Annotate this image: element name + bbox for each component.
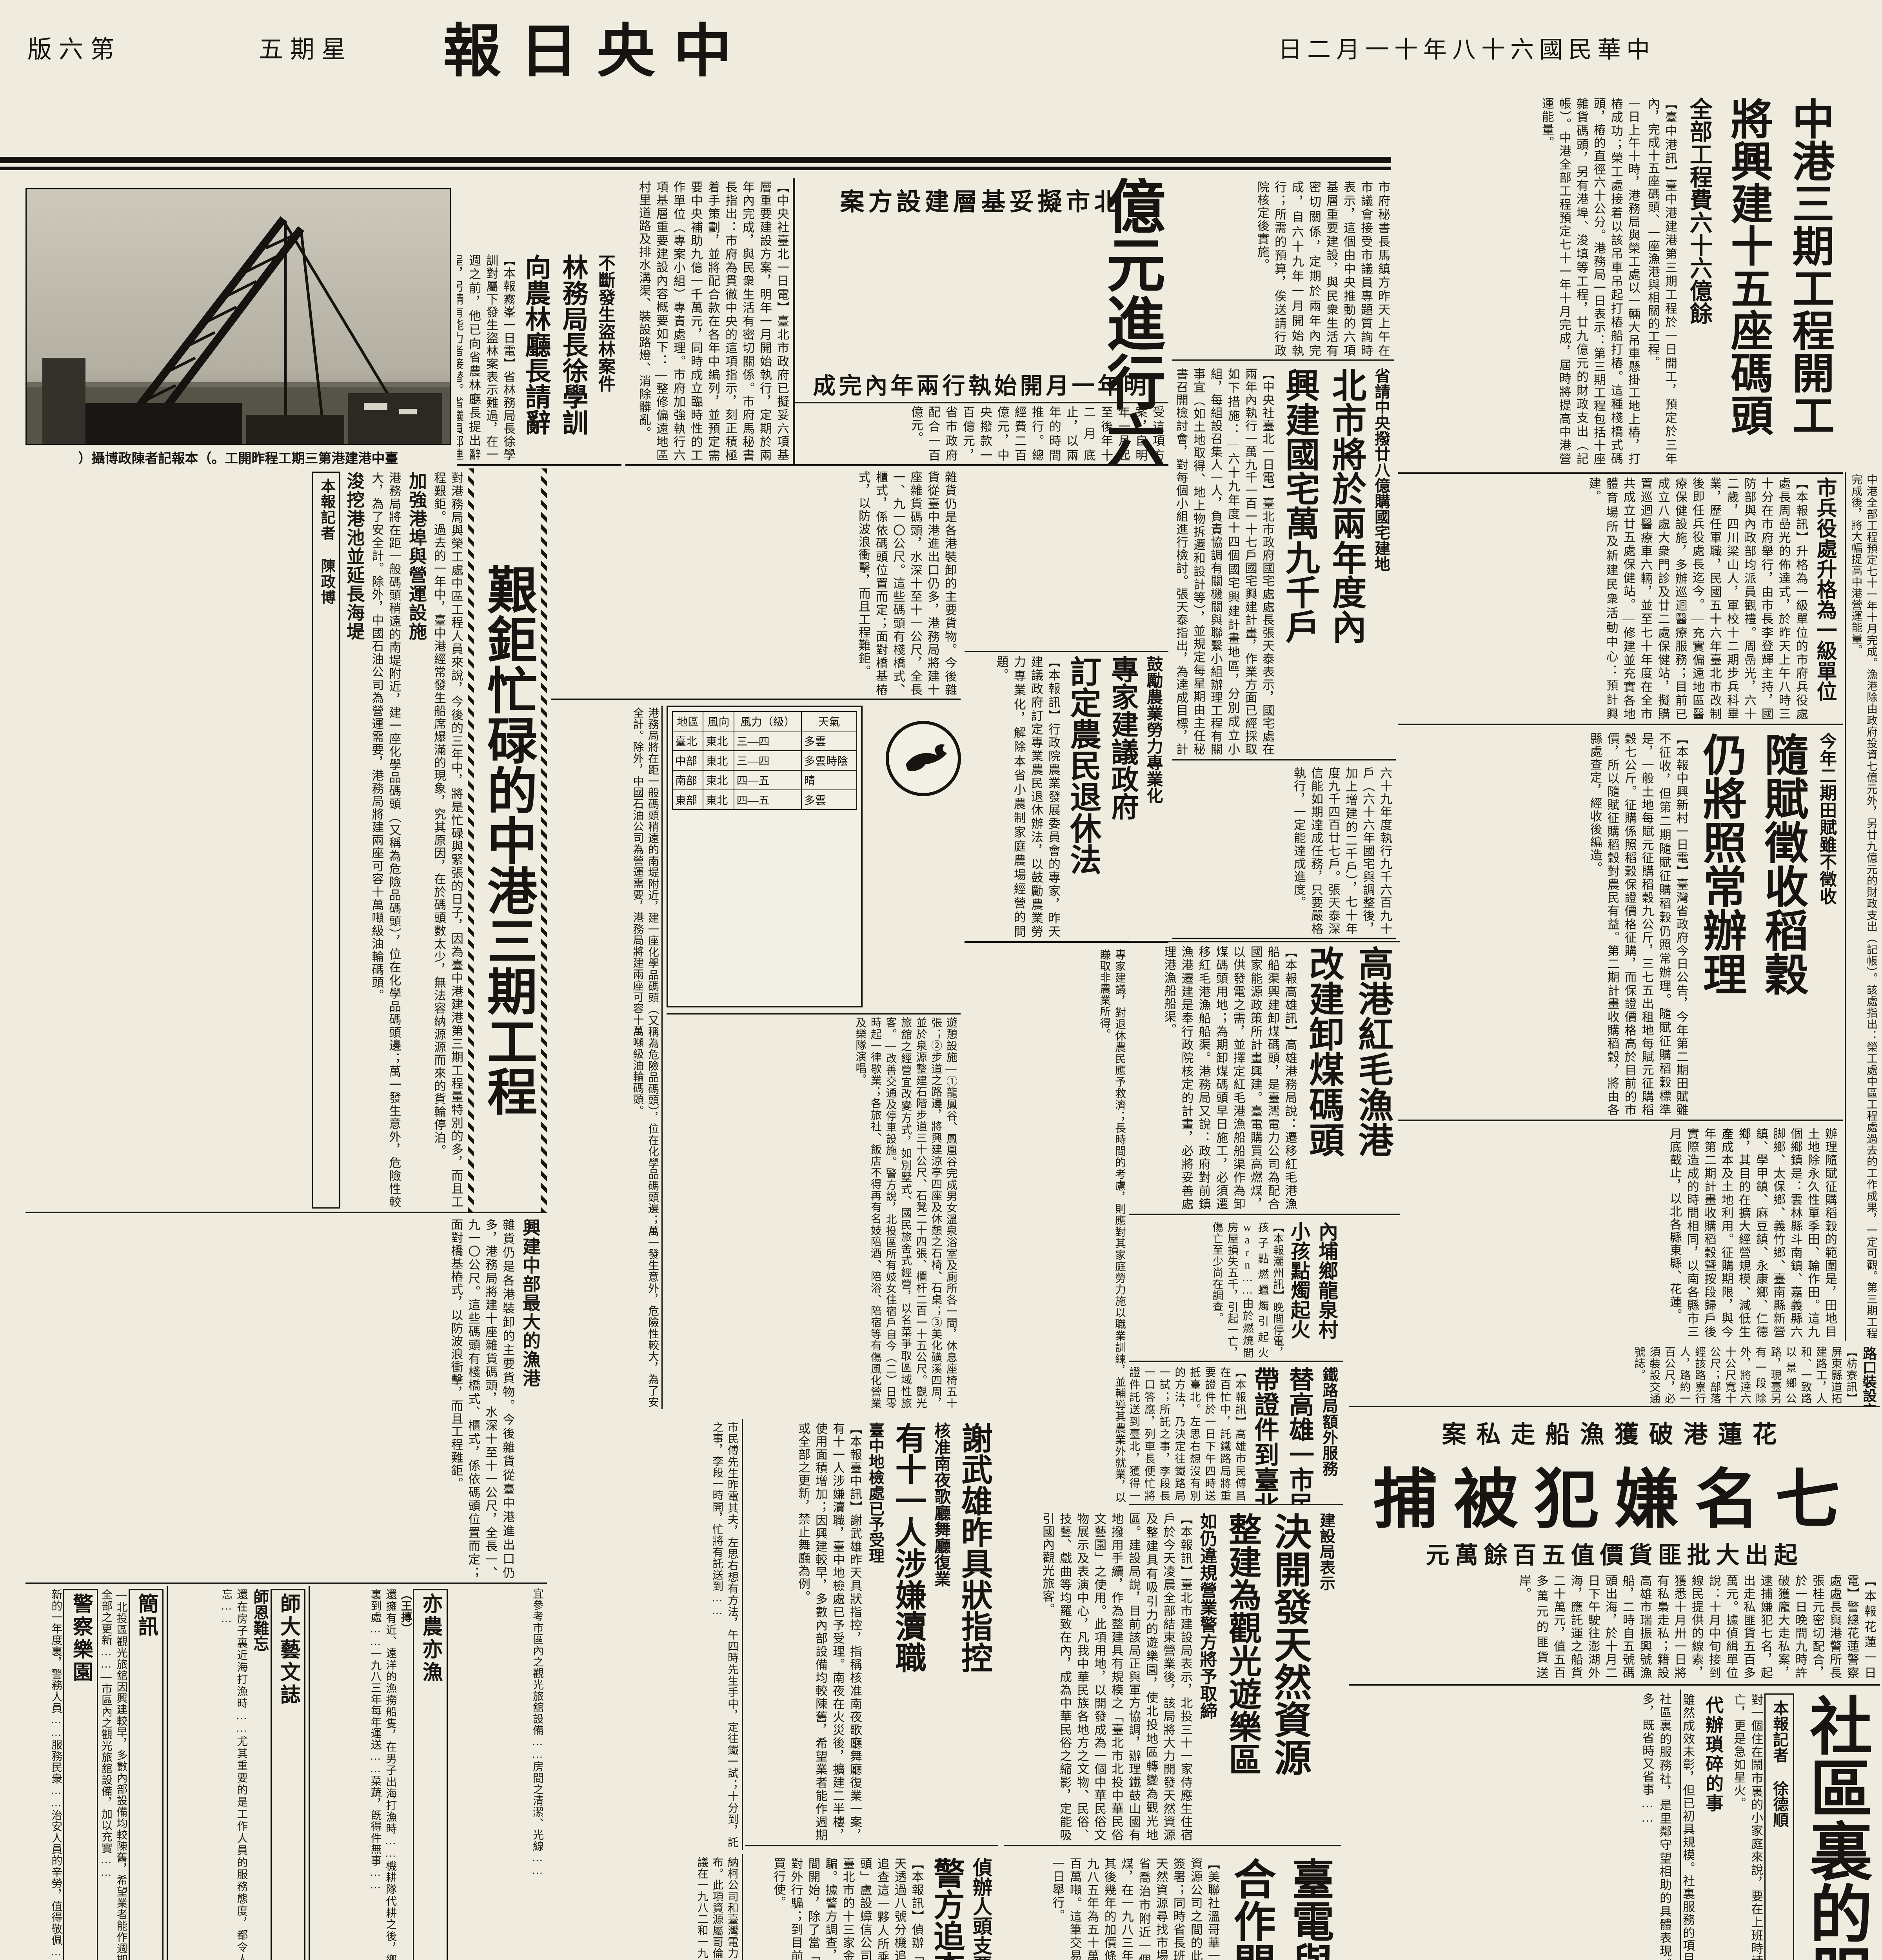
column-police-title: 警察樂園 bbox=[63, 1589, 98, 1960]
story-taichung-port-subhead: 全部工程費六十六億餘 bbox=[1681, 97, 1717, 465]
story-rice-levy-body: 【本報中興新村一日電】臺灣省政府今日公告，今年第二期田賦雖不征收，但第二期隨賦征… bbox=[1586, 732, 1690, 1116]
story-taipower-coal-body2: 納柯公司和臺灣電力公司間的此項交易，是在昨天宣布。此項資源屬哥倫比亞省的天然資源… bbox=[551, 1854, 743, 1960]
story-railway-favor-body: 【本報訊】高雄市民傅昌在百忙中，託鐵路局將重要證件於一日下午四時送抵臺北。左思右… bbox=[1129, 1367, 1247, 1501]
weather-cell: 三―四 bbox=[734, 751, 801, 770]
story-smuggling-kicker: 案私走船漁獲破港蓮花 bbox=[1349, 1411, 1880, 1452]
story-forestry: 不斷發生盜林案件 林務局長徐學訓 向農林廳長請辭 【本報霧峯一日電】省林務局長徐… bbox=[457, 251, 621, 466]
story-hongmao-port-headline2: 改建卸煤碼頭 bbox=[1299, 946, 1348, 1210]
story-housing-kicker: 省請中央撥廿八億購國宅建地 bbox=[1369, 368, 1393, 756]
story-housing-headline: 北市將於兩年度內 bbox=[1322, 368, 1369, 756]
story-xiewuxiong-side: 市民傅先生昨電其夫，左思右想有方法，午四時先生手中，定往鐵一試；十分到，託之事，… bbox=[551, 1419, 743, 1850]
story-beitou-tourism-body: 【本報訊】臺北市建設局表示，北投三十一家侍應生住宿戶於今天凌晨全部結束營業後，該… bbox=[1039, 1512, 1194, 1842]
center-column-text: 雜貨仍是各港裝卸的主要貨物。今後雜貨從臺中港進出口仍多，港務局將建十座雜貨碼頭，… bbox=[551, 468, 961, 700]
story-farmer-retire-kicker: 鼓勵農業勞力專業化 bbox=[1141, 655, 1165, 938]
crane-photo-art bbox=[27, 189, 451, 445]
story-military-service-headline: 市兵役處升格為一級單位 bbox=[1809, 477, 1840, 720]
story-port-feature-sub3: 興建中部最大的漁港 bbox=[516, 1218, 544, 1579]
story-rice-levy-kicker: 今年二期田賦雖不徵收 bbox=[1813, 732, 1840, 1116]
page-date: 日二月一十年八十六國民華中 bbox=[1278, 31, 1858, 70]
weather-cell: 東北 bbox=[703, 731, 734, 751]
story-military-service: 市兵役處升格為一級單位 【本報訊】升格為一級單位的市府兵役處處長周嵒光的佈達式，… bbox=[1398, 472, 1843, 725]
story-housing-body: 【中央社臺北一日電】臺北市政府國宅處處長張天泰表示，國宅處在兩年內執行一萬九千一… bbox=[1172, 368, 1276, 756]
weather-header: 地區 bbox=[672, 711, 703, 731]
story-six-projects-body2: 市府秘書長馬鎮方昨天上午在市議會接受市議員專題質詢時表示，這個由中央推動的六項基… bbox=[1172, 178, 1394, 361]
column-art-journal-title: 師大藝文誌 bbox=[271, 1589, 305, 1960]
story-xiewuxiong-headline: 謝武雄昨具狀指控 bbox=[953, 1422, 995, 1842]
story-check-fraud-kicker: 偵辦人頭支票案 bbox=[967, 1857, 995, 1960]
story-hongmao-port: 高港紅毛漁港 改建卸煤碼頭 【本報高雄訊】高雄港務局說：遷移紅毛港漁船船渠興建卸… bbox=[1129, 941, 1400, 1215]
story-taichung-port-lead: 【臺中港訊】臺中港建港第三期工程於一日開工，預定於三年內，完成十五座碼頭、一座漁… bbox=[1642, 97, 1681, 465]
story-community-service-bodyB: 雖然成效未彰，但已初具規模。社裏服務的項目很多，每月代辦的事項都有兩、三百件，例… bbox=[1680, 1693, 1696, 1960]
story-community-service-extension: 社區裏的服務社，是里鄰守望相助的具體表現。住戶只要把要辦的事交給服務社，繳付少許… bbox=[1349, 1690, 1676, 1960]
weather-cell: 南部 bbox=[672, 770, 703, 790]
weather-cell: 東北 bbox=[703, 790, 734, 809]
story-smuggling: 案私走船漁獲破港蓮花 捕被犯嫌名七 元萬餘百五值價貨匪批大出起 【本報花蓮一日電… bbox=[1349, 1411, 1880, 1686]
story-neipu-fire-headline2: 小孩點燭起火 bbox=[1285, 1221, 1313, 1358]
story-port-feature: 對港務局與榮工處中區工程人員來說，今後的三年中，將是忙碌與緊張的日子，因為臺中港… bbox=[25, 468, 547, 1213]
column-farm-fish-author: （王摶） bbox=[398, 1589, 413, 1960]
story-traffic-signal-body: 【枋寮訊】屏東縣道拓建路工，人和、一致路以景鄉公路，現臺另有一段除外，將達六十公… bbox=[1631, 1346, 1858, 1404]
column-briefs: 簡訊 ―北投區觀光旅舘因興建較早，多數內部設備均較陳舊，希望業者能作週期或全部之… bbox=[25, 1586, 167, 1960]
right-edge-column: 中港全部工程預定七十一年十月完成。漁港除由政府投資七億元外，另廿九億元的財政支出… bbox=[1845, 472, 1880, 1341]
weather-cell: 東北 bbox=[703, 751, 734, 770]
masthead-rule bbox=[0, 157, 1391, 170]
story-farmer-retire: 鼓勵農業勞力專業化 專家建議政府 訂定農民退休法 【本報訊】行政院農業發展委員會… bbox=[965, 651, 1168, 943]
weather-cell: 多雲 bbox=[801, 790, 857, 809]
story-xiewuxiong-headline2: 有十一人涉嫌瀆職 bbox=[887, 1422, 928, 1842]
story-housing-headline2: 興建國宅萬九千戶 bbox=[1276, 368, 1322, 756]
story-xiewuxiong: 謝武雄昨具狀指控 核准南夜歌廳舞廳復業 有十一人涉嫌瀆職 臺中地檢處已予受理 【… bbox=[745, 1419, 998, 1846]
story-rice-levy-headline2: 仍將照常辦理 bbox=[1690, 732, 1751, 1116]
story-hongmao-port-headline: 高港紅毛漁港 bbox=[1348, 946, 1397, 1210]
story-six-projects-body: 【中央社臺北一日電】臺北市政府已擬妥六項基層重要建設方案，明年一月開始執行，定期… bbox=[625, 178, 794, 464]
story-taipower-coal-headline2: 合作開採煤礦 bbox=[1221, 1857, 1280, 1960]
story-rice-levy-headline: 隨賦徵收稻穀 bbox=[1751, 732, 1813, 1116]
center-lower-text: 遊憩設施―①龍鳳谷、鳳凰谷完成男女溫泉浴室及廁所各一間，休息座椅五十張；②步道之… bbox=[667, 1013, 961, 1411]
column-art-journal-body: 還在房子裏近海打漁時……尤其重要的是工作人員的服務態度，都令人難忘…… bbox=[218, 1589, 249, 1960]
dove-emblem bbox=[884, 719, 963, 798]
story-community-service: 社區裏的服務社 本報記者 徐德順 對一個住在鬧市裏的小家庭來說，要在上班時請個假… bbox=[1680, 1690, 1880, 1960]
story-port-feature-sub1: 加強港埠與營運設施 bbox=[402, 472, 430, 1209]
story-community-service-headline: 社區裏的服務社 bbox=[1794, 1693, 1876, 1960]
story-community-service-byline: 本報記者 徐德順 bbox=[1764, 1693, 1794, 1960]
story-beitou-tourism-subhead: 如仍違規營業警方將予取締 bbox=[1194, 1512, 1219, 1842]
weather-cell: 東部 bbox=[672, 790, 703, 809]
column-farm-fish-title: 亦農亦漁 bbox=[413, 1589, 448, 1960]
story-xiewuxiong-lead: 臺中地檢處已予受理 bbox=[863, 1422, 887, 1842]
story-farmer-retire-headline2: 訂定農民退休法 bbox=[1062, 655, 1103, 938]
story-port-feature-byline: 本報記者 陳政博 bbox=[312, 472, 340, 1209]
story-community-subhead-1: 代辦瑣碎的事 bbox=[1696, 1693, 1730, 1960]
column-art-journal: 師大藝文誌 師恩難忘 還在房子裏近海打漁時……尤其重要的是工作人員的服務態度，都… bbox=[167, 1586, 309, 1960]
crane-photo-caption: ）攝博政陳者記報本（。工開昨程工期三第港建港中臺 bbox=[25, 447, 451, 467]
weather-cell: 臺北 bbox=[672, 731, 703, 751]
story-forestry-headline2: 向農林廳長請辭 bbox=[517, 254, 554, 461]
story-neipu-fire-body: 【本報潮州訊】晚間停電，孩子點燃蠟燭引起火warn……由於燃燒間房屋損失五千，引… bbox=[1209, 1221, 1285, 1358]
story-port-feature-headline: 艱鉅忙碌的中港三期工程 bbox=[474, 468, 541, 1212]
wavy-border-right bbox=[541, 468, 547, 1212]
story-six-projects-headline: 將以 四十 億元 進行 六項 建設 bbox=[794, 221, 1168, 366]
weather-cell: 多雲 bbox=[801, 731, 857, 751]
story-community-service-body: 對一個住在鬧市裏的小家庭來說，要在上班時請個假到區公所或是其他機構辦些瑣碎而又必… bbox=[1730, 1693, 1764, 1960]
story-six-projects-subhead: 成完內年兩行執始開月一年明 bbox=[794, 366, 1168, 402]
wavy-border-left bbox=[468, 468, 474, 1212]
weather-table: 地區 風向 風力（級） 天氣 臺北東北三―四多雲 中部東北三―四多雲時陰 南部東… bbox=[672, 711, 857, 810]
story-beitou-tourism-kicker: 建設局表示 bbox=[1314, 1512, 1338, 1842]
story-check-fraud-headline: 警方追查兩嫌犯 bbox=[925, 1857, 967, 1960]
story-port-feature-par2: 港務局將在距一般碼頭稍遠的南堤附近，建一座化學品碼頭（又稱為危險品碼頭），位在化… bbox=[368, 472, 402, 1209]
story-taipower-coal-body: 【美聯社溫哥華一日電】中華民國的臺灣電力公司和納柯資源公司之間的此項暫時性協議，… bbox=[1049, 1857, 1221, 1960]
column-farm-fish-body: 還擁有近、遠洋的漁撈船隻，在男子出海打漁時……機耕隊代耕之後，鄉村裏到處……一九… bbox=[367, 1589, 398, 1960]
story-railway-favor-headline: 替高雄一市民 bbox=[1282, 1367, 1317, 1501]
story-forestry-headline: 林務局長徐學訓 bbox=[554, 254, 591, 461]
column-briefs-title: 簡訊 bbox=[129, 1589, 163, 1960]
story-xiewuxiong-kicker: 核准南夜歌廳舞廳復業 bbox=[928, 1422, 953, 1842]
story-traffic-signal: 路口裝設交通號誌 【枋寮訊】屏東縣道拓建路工，人和、一致路以景鄉公路，現臺另有一… bbox=[1349, 1345, 1880, 1407]
weather-cell: 中部 bbox=[672, 751, 703, 770]
mini-columns-side: 宜參考市區內之觀光旅舘設備……房間之清潔、光線…… bbox=[453, 1586, 547, 1960]
weather-header: 風向 bbox=[703, 711, 734, 731]
story-smuggling-subhead: 元萬餘百五值價貨匪批大出起 bbox=[1349, 1535, 1880, 1572]
crane-photo bbox=[25, 188, 451, 445]
story-forestry-kicker: 不斷發生盜林案件 bbox=[592, 254, 618, 461]
story-port-feature-body: 對港務局與榮工處中區工程人員來說，今後的三年中，將是忙碌與緊張的日子，因為臺中港… bbox=[25, 468, 468, 1212]
story-taichung-port-headline2: 將興建十五座碼頭 bbox=[1717, 97, 1778, 465]
story-port-feature-par3: 雜貨仍是各港裝卸的主要貨物。今後雜貨從臺中港進出口仍多，港務局將建十座雜貨碼頭，… bbox=[447, 1218, 516, 1579]
story-taichung-port-headline: 中港三期工程開工 bbox=[1778, 97, 1840, 465]
weather-cell: 多雲時陰 bbox=[801, 751, 857, 770]
column-briefs-body: ―北投區觀光旅舘因興建較早，多數內部設備均較陳舊，希望業者能作週期或全部之更新…… bbox=[98, 1589, 128, 1960]
weather-cell: 四―五 bbox=[734, 770, 801, 790]
story-check-fraud: 偵辦人頭支票案 警方追查兩嫌犯 【本報訊】偵辦「人頭支票」案的刑事警察局偵五組，… bbox=[745, 1854, 998, 1960]
story-beitou-tourism: 建設局表示 決開發天然資源 整建為觀光遊樂區 如仍違規營業警方將予取締 【本報訊… bbox=[1004, 1509, 1341, 1846]
story-beitou-tourism-headline: 決開發天然資源 bbox=[1264, 1512, 1314, 1842]
story-beitou-tourism-headline2: 整建為觀光遊樂區 bbox=[1219, 1512, 1264, 1842]
story-taichung-port: 中港三期工程開工 將興建十五座碼頭 全部工程費六十六億餘 【臺中港訊】臺中港建港… bbox=[1398, 94, 1843, 468]
page-edition: 版六第 bbox=[27, 29, 161, 69]
weather-box: 地區 風向 風力（級） 天氣 臺北東北三―四多雲 中部東北三―四多雲時陰 南部東… bbox=[667, 706, 863, 1007]
story-railway-favor-headline2: 帶證件到臺北 bbox=[1247, 1367, 1282, 1501]
story-port-feature-extension: 興建中部最大的漁港 雜貨仍是各港裝卸的主要貨物。今後雜貨從臺中港進出口仍多，港務… bbox=[25, 1215, 547, 1584]
story-six-projects: 【中央社臺北一日電】臺北市政府已擬妥六項基層重要建設方案，明年一月開始執行，定期… bbox=[625, 178, 1168, 466]
story-housing: 省請中央撥廿八億購國宅建地 北市將於兩年度內 興建國宅萬九千戶 【中央社臺北一日… bbox=[1172, 365, 1396, 760]
story-farmer-retire-body: 【本報訊】行政院農業發展委員會的專家，昨天建議政府訂定專業農民退休辦法，以鼓勵農… bbox=[993, 655, 1062, 938]
column-farm-fish: 亦農亦漁 （王摶） 還擁有近、遠洋的漁撈船隻，在男子出海打漁時……機耕隊代耕之後… bbox=[309, 1586, 451, 1960]
weather-cell: 晴 bbox=[801, 770, 857, 790]
story-railway-favor: 鐵路局額外服務 替高雄一市民 帶證件到臺北 【本報訊】高雄市民傅昌在百忙中，託鐵… bbox=[1129, 1364, 1343, 1505]
story-taichung-port-body: 一日上午十時，港務局與榮工處以一輛大吊車懸掛工地上樁，打樁成功；榮工處接着以該吊… bbox=[1538, 97, 1642, 465]
story-xiewuxiong-body: 【本報臺中訊】謝武雄昨天具狀指控，指稱核准南夜歌廳舞廳復業一案，有十一人涉嫌瀆職… bbox=[794, 1422, 863, 1842]
weather-cell: 東北 bbox=[703, 770, 734, 790]
weather-header: 天氣 bbox=[801, 711, 857, 731]
story-farmer-retire-headline: 專家建議政府 bbox=[1103, 655, 1141, 938]
column-police-body: 新的一年度裏，警務人員……服務民衆……治安人員的辛勞，值得敬佩…… bbox=[48, 1589, 64, 1960]
story-hongmao-port-body: 【本報高雄訊】高雄港務局說：遷移紅毛港漁船船渠興建卸煤碼頭，是臺灣電力公司為配合… bbox=[1161, 946, 1299, 1210]
story-port-feature-sub2: 浚挖港池並延長海堤 bbox=[340, 472, 368, 1209]
story-six-projects-body3: 受這項方案，自明年一月起至後年十二月底止，以兩年的時間推行。總經費二百億元，中央… bbox=[794, 402, 1168, 464]
page-weekday: 五期星 bbox=[259, 29, 392, 69]
center-left-strip: 港務局將在距一般碼頭稍遠的南堤附近，建一座化學品碼頭（又稱為危險品碼頭），位在化… bbox=[551, 706, 663, 1409]
column-art-journal-sub: 師恩難忘 bbox=[249, 1589, 271, 1960]
story-railway-favor-kicker: 鐵路局額外服務 bbox=[1317, 1367, 1341, 1501]
masthead: 報日央中 bbox=[443, 4, 765, 76]
story-rice-levy-body2: 辦理隨賦征購稻穀的範圍是，田地目土地除永久性單季田、輪作田。這九個鄉鎮是：雲林縣… bbox=[1402, 1125, 1841, 1341]
story-check-fraud-body: 【本報訊】偵辦「人頭支票」案的刑事警察局偵五組，昨天透過八號分機追查兩名嫌犯鄧文… bbox=[770, 1857, 925, 1960]
story-port-feature-par1: 對港務局與榮工處中區工程人員來說，今後的三年中，將是忙碌與緊張的日子，因為臺中港… bbox=[430, 472, 465, 1209]
headline-group: 億元 bbox=[794, 178, 1168, 293]
story-taipower-coal-headline: 臺電與加簽約 bbox=[1279, 1857, 1338, 1960]
story-traffic-signal-headline: 路口裝設交通號誌 bbox=[1858, 1346, 1878, 1404]
weather-header: 風力（級） bbox=[734, 711, 801, 731]
story-forestry-body: 【本報霧峯一日電】省林務局長徐學訓對屬下發生盜林案表示難過，在一週之前，他已向省… bbox=[457, 254, 517, 461]
story-taipower-coal: 臺電與加簽約 合作開採煤礦 【美聯社溫哥華一日電】中華民國的臺灣電力公司和納柯資… bbox=[1004, 1854, 1341, 1960]
story-military-service-body: 【本報訊】升格為一級單位的市府兵役處處長周嵒光的佈達式，於昨天上午八時三十分在市… bbox=[1585, 477, 1809, 720]
weather-cell: 三―四 bbox=[734, 731, 801, 751]
story-housing-body2: 六十九年度執行九千六百九十戶（六十六年國宅與調整後，加上增建的二千戶），七十年度… bbox=[1172, 764, 1396, 939]
mini-columns: 亦農亦漁 （王摶） 還擁有近、遠洋的漁撈船隻，在男子出海打漁時……機耕隊代耕之後… bbox=[25, 1586, 451, 1960]
story-smuggling-headline: 捕被犯嫌名七 bbox=[1349, 1452, 1880, 1535]
story-smuggling-body: 【本報花蓮一日電】警總花蓮警察處處長與港警所長張桂元密切配合，於一日晚間九時許破… bbox=[1349, 1572, 1880, 1682]
story-neipu-fire: 內埔鄉龍泉村 小孩點燭起火 【本報潮州訊】晚間停電，孩子點燃蠟燭引起火warn…… bbox=[1129, 1219, 1343, 1362]
story-neipu-fire-headline: 內埔鄉龍泉村 bbox=[1313, 1221, 1341, 1358]
story-rice-levy: 今年二期田賦雖不徵收 隨賦徵收稻穀 仍將照常辦理 【本報中興新村一日電】臺灣省政… bbox=[1398, 729, 1843, 1121]
weather-cell: 四―五 bbox=[734, 790, 801, 809]
